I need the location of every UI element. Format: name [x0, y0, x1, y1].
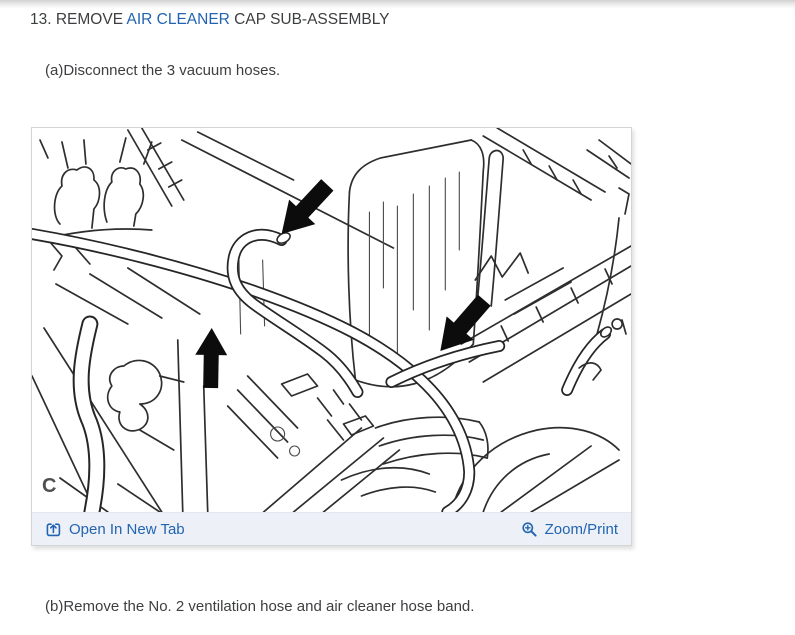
step-a-text: (a)Disconnect the 3 vacuum hoses.: [45, 61, 280, 80]
copyright-mark: C: [42, 476, 56, 496]
engine-bay-line-art: [32, 128, 631, 512]
engine-bay-diagram: C: [32, 128, 631, 512]
arrow-indicator-3: [195, 328, 228, 389]
open-in-new-tab-icon: [45, 521, 62, 538]
top-divider: [0, 0, 795, 9]
vacuum-hose-1: [233, 235, 358, 392]
air-cleaner-link[interactable]: AIR CLEANER: [126, 11, 229, 28]
vacuum-hose-3: [567, 334, 605, 390]
figure-panel: C Open In New Tab: [31, 127, 632, 546]
zoom-print-link[interactable]: Zoom/Print: [521, 521, 618, 538]
heading-suffix: CAP SUB-ASSEMBLY: [230, 11, 390, 28]
open-in-new-tab-label: Open In New Tab: [69, 521, 185, 538]
step-b-text: (b)Remove the No. 2 ventilation hose and…: [45, 597, 474, 616]
open-in-new-tab-link[interactable]: Open In New Tab: [45, 521, 185, 538]
zoom-print-label: Zoom/Print: [545, 521, 618, 538]
heading-prefix: 13. REMOVE: [30, 11, 126, 28]
zoom-magnifier-icon: [521, 521, 538, 538]
manual-page: 13. REMOVE AIR CLEANER CAP SUB-ASSEMBLY …: [0, 0, 795, 635]
step-heading: 13. REMOVE AIR CLEANER CAP SUB-ASSEMBLY: [30, 10, 390, 30]
figure-toolbar: Open In New Tab Zoom/Print: [32, 512, 631, 545]
